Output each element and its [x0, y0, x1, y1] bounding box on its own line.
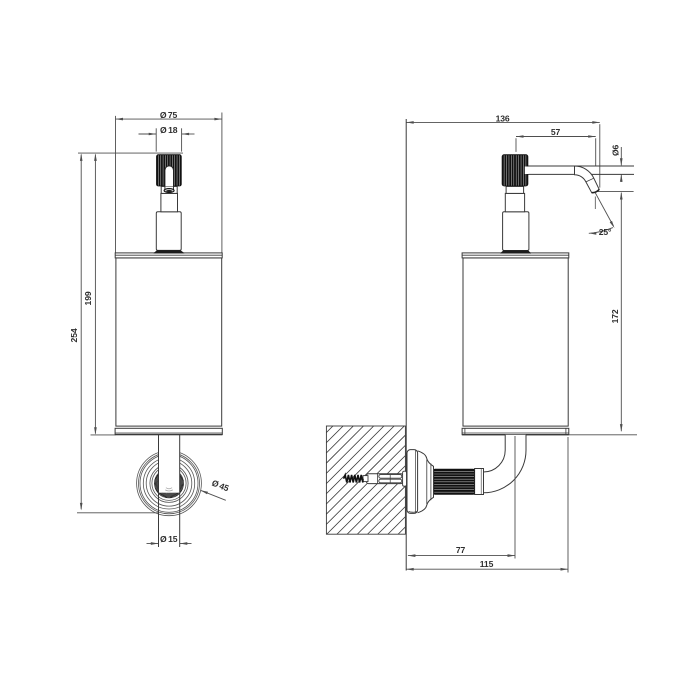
- svg-text:Ø 15: Ø 15: [160, 534, 178, 544]
- svg-text:172: 172: [610, 309, 620, 323]
- svg-text:57: 57: [551, 127, 561, 137]
- svg-text:254: 254: [69, 328, 79, 342]
- svg-text:115: 115: [480, 559, 494, 569]
- svg-text:136: 136: [496, 113, 510, 123]
- svg-text:25°: 25°: [599, 227, 612, 237]
- svg-text:Ø 75: Ø 75: [160, 110, 178, 120]
- svg-text:Ø6: Ø6: [610, 144, 620, 156]
- svg-text:199: 199: [83, 291, 93, 305]
- svg-text:77: 77: [456, 545, 466, 555]
- svg-text:Ø 18: Ø 18: [160, 125, 178, 135]
